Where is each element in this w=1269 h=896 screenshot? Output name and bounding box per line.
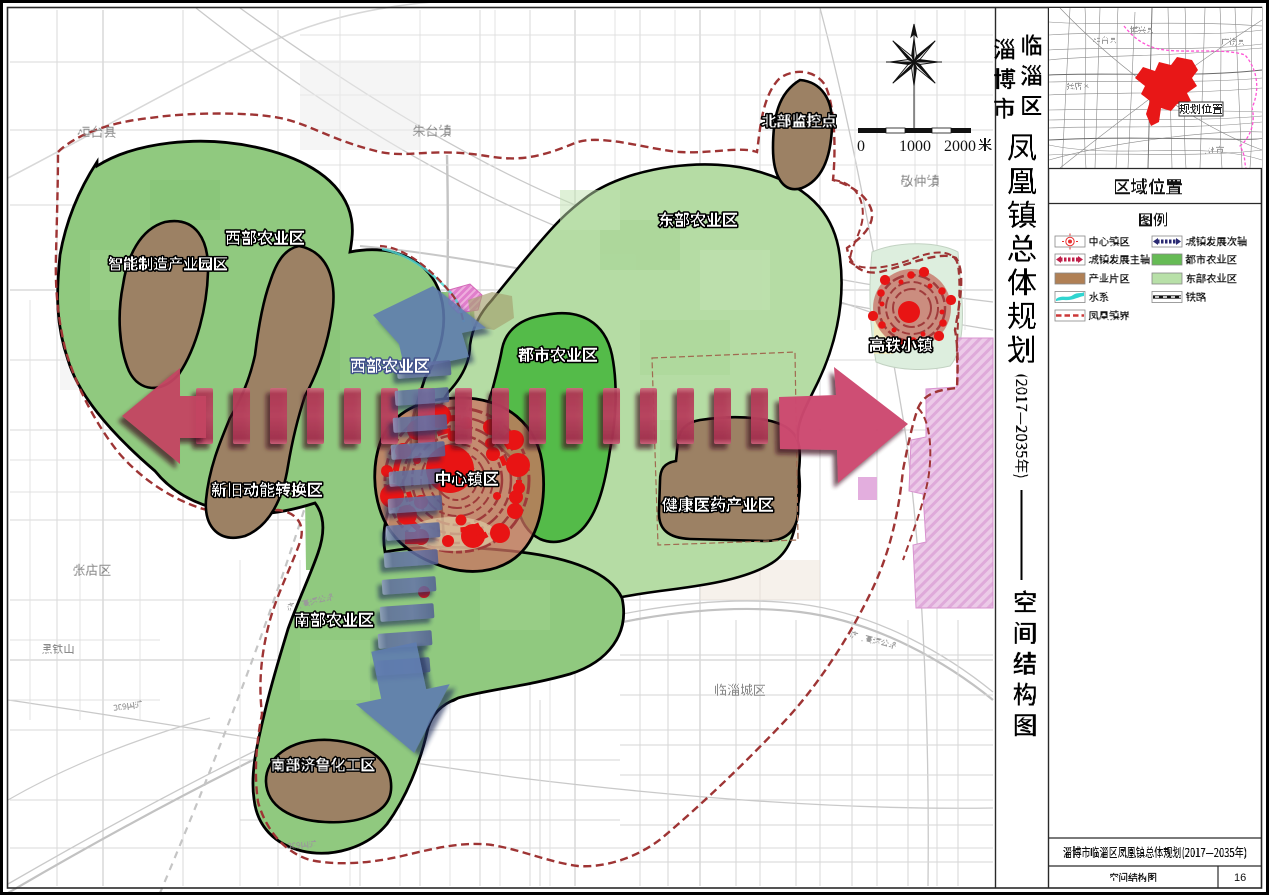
svg-text:1000: 1000	[899, 138, 931, 155]
svg-text:16: 16	[1234, 872, 1246, 884]
svg-text:2000: 2000	[944, 138, 976, 155]
svg-text:0: 0	[857, 138, 865, 155]
